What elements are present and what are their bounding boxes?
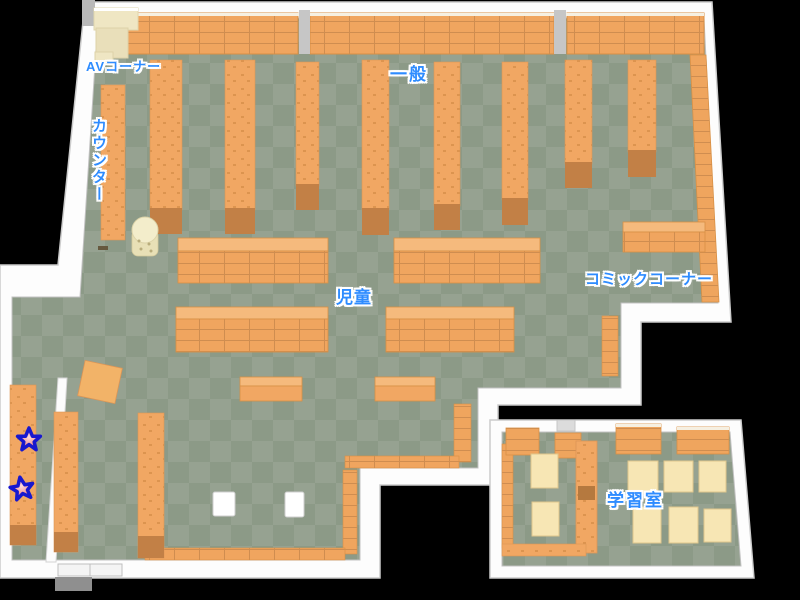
cylinder-dot — [138, 240, 141, 243]
bookshelf-top-edge — [677, 427, 729, 430]
bookshelf-row — [502, 62, 528, 200]
pillar — [299, 10, 310, 54]
divider-notch — [578, 486, 595, 500]
wall-shelf — [345, 456, 459, 468]
cylinder-dot — [150, 250, 153, 253]
stool — [213, 492, 235, 516]
comic-corner-shelf — [623, 222, 705, 252]
bench — [240, 386, 302, 401]
study-desk — [699, 461, 726, 492]
label-counter: カウンター — [88, 118, 109, 228]
pillar — [554, 10, 566, 54]
av-cabinet-top-edge — [94, 8, 138, 11]
study-desk — [664, 461, 693, 492]
label-study-room: 学習室 — [607, 486, 664, 511]
low-shelf-top — [623, 222, 705, 232]
wall-shelf — [145, 548, 345, 560]
bookshelf-row — [54, 412, 78, 552]
bookshelf-base — [138, 536, 164, 558]
bookshelf — [506, 428, 539, 455]
bookshelf-base — [362, 208, 389, 235]
wall-shelf — [502, 444, 513, 548]
bench-top — [240, 377, 302, 386]
low-shelf-top — [394, 238, 540, 251]
bookshelf-top-edge — [616, 424, 661, 427]
wall-shelf — [567, 13, 704, 54]
bookshelf-base — [434, 204, 460, 230]
floor-map-drawing — [0, 0, 800, 600]
bookshelf-base — [54, 532, 78, 552]
star-bookshelf — [10, 385, 36, 545]
bookshelf-row — [150, 60, 182, 210]
low-shelf — [623, 232, 705, 252]
cylinder-top — [132, 217, 158, 243]
stool — [285, 492, 304, 517]
bookshelf-base — [502, 198, 528, 225]
cylinder-rack — [132, 217, 158, 256]
label-comic-corner: コミックコーナー — [585, 268, 713, 289]
entrance-step — [55, 577, 92, 591]
label-general: 一般 — [390, 60, 428, 85]
study-desk — [704, 509, 731, 542]
cylinder-dot — [148, 243, 151, 246]
library-floor-map: AVコーナー カウンター 一般 児童 コミックコーナー 学習室 — [0, 0, 800, 600]
bookshelf-row — [565, 60, 592, 164]
wall-shelf — [128, 13, 298, 54]
wall-shelf-top-edge — [128, 13, 704, 16]
bookshelf-row — [296, 62, 319, 186]
study-room-door — [557, 420, 575, 431]
cylinder-dot — [140, 248, 143, 251]
bookshelf-row — [362, 60, 389, 210]
bookshelf-base — [628, 150, 656, 177]
wall-shelf — [502, 544, 586, 556]
study-desk — [532, 502, 559, 536]
bookshelf — [677, 427, 729, 454]
bookshelf-base — [296, 184, 319, 210]
low-shelf — [176, 319, 328, 352]
bookshelf-row — [628, 60, 656, 152]
label-children: 児童 — [336, 283, 372, 308]
study-desk — [633, 507, 661, 543]
study-desk — [669, 507, 698, 543]
low-shelf — [386, 319, 514, 352]
bookshelf-row — [434, 62, 460, 206]
av-cabinet — [94, 8, 138, 30]
bookshelf-row — [225, 60, 255, 210]
low-shelf-top — [176, 307, 328, 319]
low-shelf-top — [178, 238, 328, 251]
wall-shelf — [602, 316, 618, 376]
label-av-corner: AVコーナー — [86, 56, 161, 75]
bench — [375, 386, 435, 401]
bookshelf-base — [225, 208, 255, 234]
bookshelf-base — [565, 162, 592, 188]
wall-shelf — [454, 404, 471, 462]
bookshelf — [616, 424, 661, 454]
bookshelf-base — [10, 525, 36, 545]
wall-shelf — [343, 470, 357, 554]
low-shelf — [394, 251, 540, 283]
display-table — [78, 360, 123, 403]
low-shelf-top — [386, 307, 514, 319]
bench-top — [375, 377, 435, 386]
study-desk — [531, 454, 558, 488]
pillar — [82, 0, 95, 26]
wall-shelf — [310, 13, 554, 54]
counter-end-mark — [98, 246, 108, 250]
low-shelf — [178, 251, 328, 283]
